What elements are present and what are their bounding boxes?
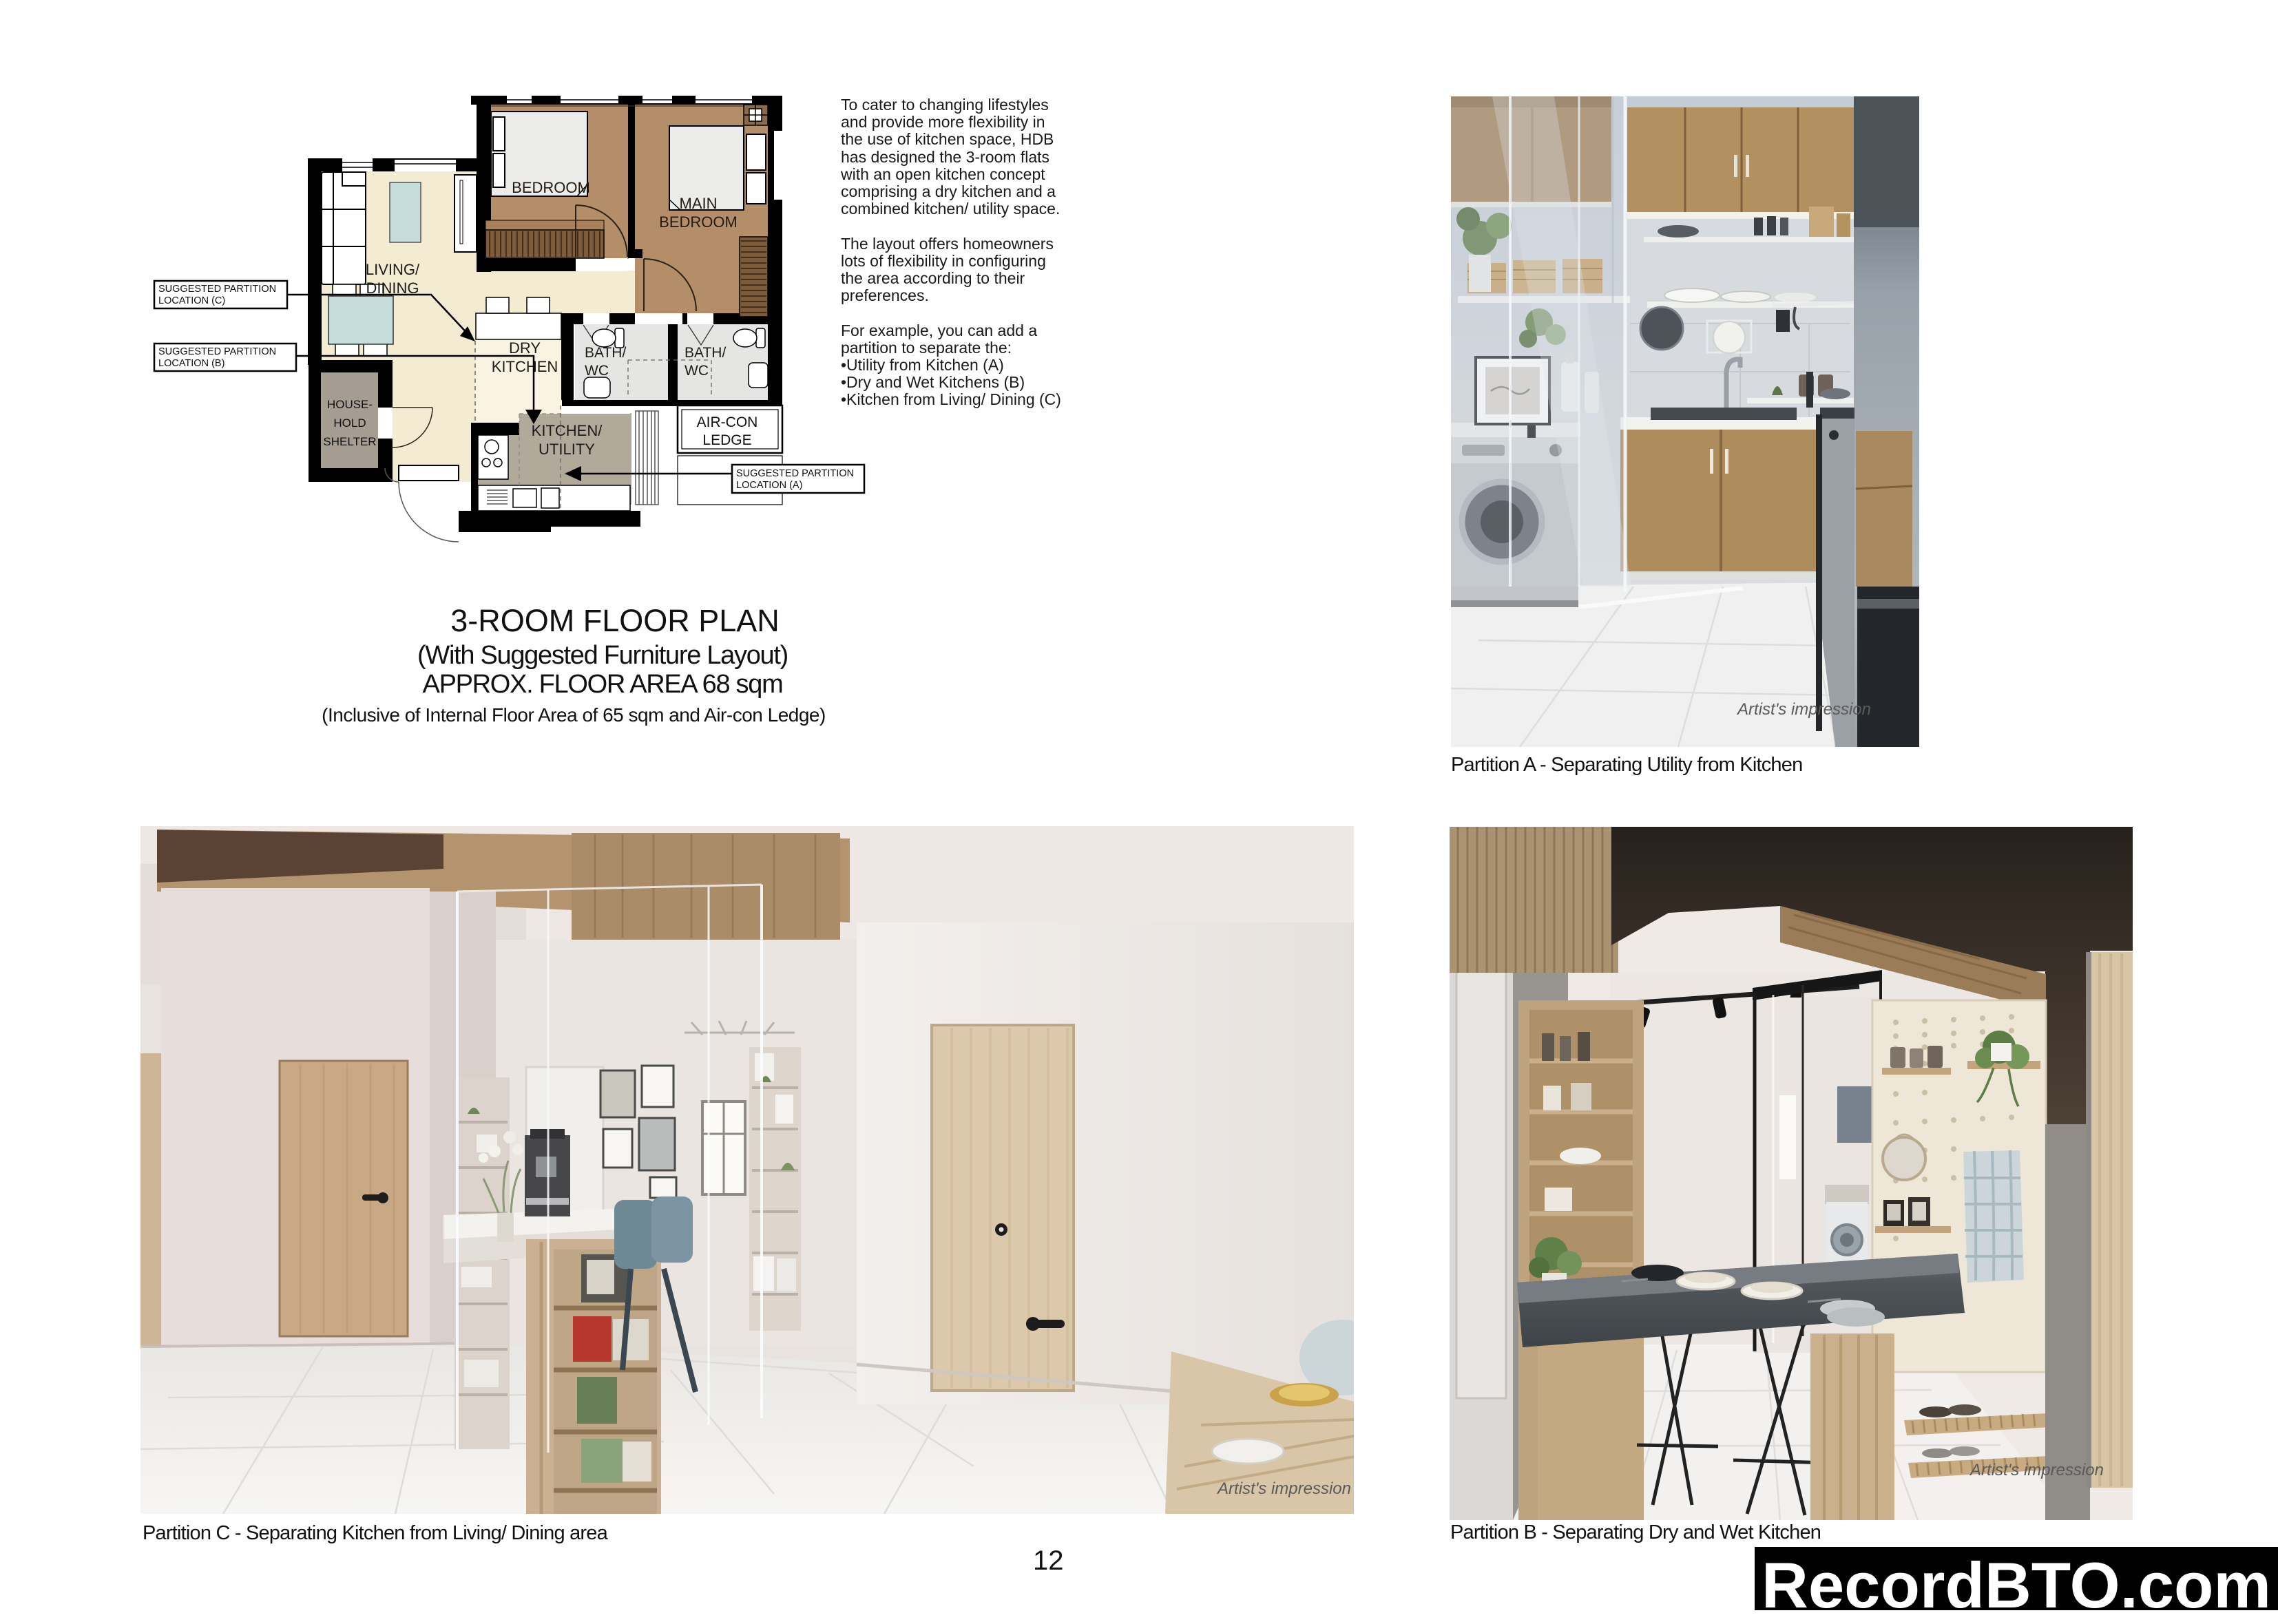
svg-text:LOCATION (B): LOCATION (B) (158, 358, 224, 369)
svg-text:SUGGESTED PARTITION: SUGGESTED PARTITION (158, 284, 276, 295)
svg-text:SUGGESTED PARTITION: SUGGESTED PARTITION (736, 468, 854, 479)
svg-text:WC: WC (585, 363, 609, 379)
svg-text:UTILITY: UTILITY (539, 441, 595, 458)
svg-text:Artist's impression: Artist's impression (1736, 700, 1871, 719)
svg-text:LEDGE: LEDGE (702, 432, 751, 448)
svg-text:WC: WC (685, 363, 709, 379)
svg-text:DRY: DRY (509, 339, 541, 357)
svg-text:Artist's impression: Artist's impression (1969, 1461, 2104, 1479)
svg-text:HOUSE-: HOUSE- (327, 398, 373, 411)
svg-text:BATH/: BATH/ (685, 345, 726, 361)
svg-text:BATH/: BATH/ (585, 345, 626, 361)
svg-text:LOCATION (A): LOCATION (A) (736, 480, 802, 491)
svg-text:MAIN: MAIN (680, 195, 718, 212)
svg-text:HOLD: HOLD (333, 416, 366, 430)
svg-text:SHELTER: SHELTER (323, 435, 376, 448)
svg-text:KITCHEN/: KITCHEN/ (532, 422, 603, 439)
svg-text:LOCATION (C): LOCATION (C) (158, 295, 225, 306)
svg-text:SUGGESTED PARTITION: SUGGESTED PARTITION (158, 346, 276, 357)
svg-text:BEDROOM: BEDROOM (659, 213, 738, 231)
svg-text:KITCHEN: KITCHEN (492, 358, 558, 375)
svg-text:Artist's impression: Artist's impression (1216, 1479, 1351, 1498)
svg-text:BEDROOM: BEDROOM (512, 179, 590, 196)
svg-text:LIVING/: LIVING/ (366, 261, 420, 278)
svg-text:AIR-CON: AIR-CON (697, 414, 758, 430)
